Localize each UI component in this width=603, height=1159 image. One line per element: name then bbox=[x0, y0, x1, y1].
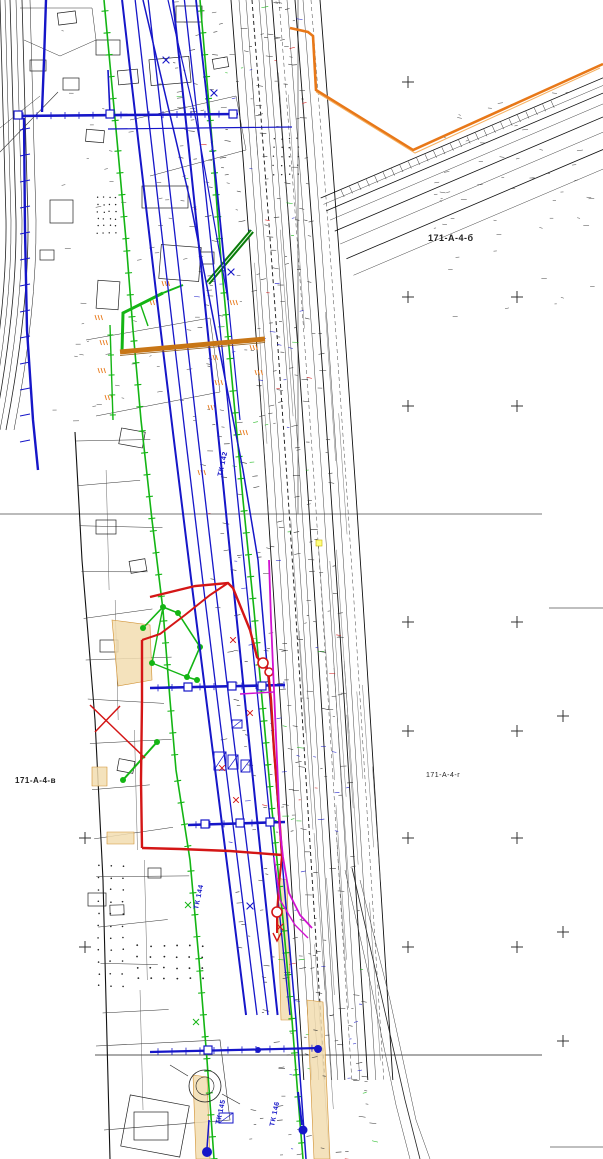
plan-canvas[interactable] bbox=[0, 0, 603, 1159]
sheet-boundary-lines bbox=[0, 0, 603, 1147]
sheet-label-171-a-4-b: 171-А-4-б bbox=[428, 233, 474, 243]
sheet-label-171-a-4-g: 171-А-4-г bbox=[426, 772, 460, 779]
micro-annotation-texture bbox=[53, 2, 595, 1159]
branch-road-fork bbox=[321, 78, 603, 275]
parcel-lines bbox=[20, 6, 246, 1159]
sheet-label-171-a-4-v: 171-А-4-в bbox=[15, 776, 56, 785]
blue-utility-lines bbox=[14, 0, 322, 1159]
survey-plan-sheet: 171-А-4-б 171-А-4-в 171-А-4-г ТК 142 ТК … bbox=[0, 0, 603, 1159]
road-corridor bbox=[231, 0, 430, 1159]
grid-crosses bbox=[79, 76, 569, 1047]
